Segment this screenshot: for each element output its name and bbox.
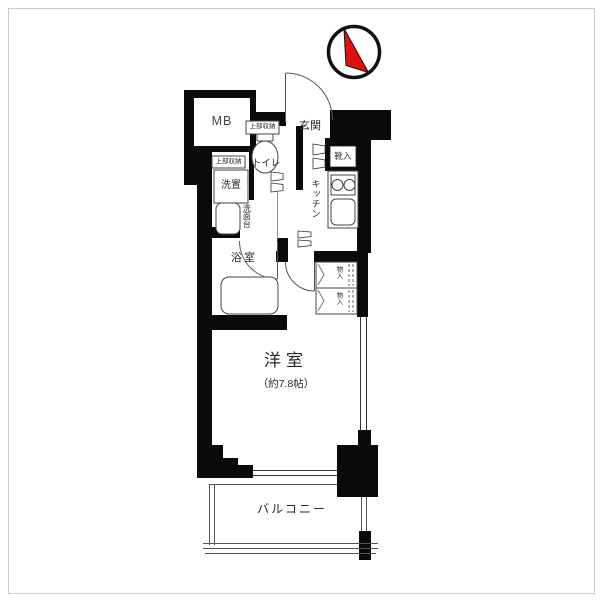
balcony-label: バルコニー xyxy=(242,503,342,516)
closet-lower-label: 物入 xyxy=(334,292,341,312)
main-room-label: 洋室 xyxy=(236,352,336,370)
shoe-cabinet-label: 靴入 xyxy=(330,146,356,167)
room-door-arc xyxy=(286,262,315,291)
bathroom-label: 浴室 xyxy=(221,253,267,265)
genkan-step-marker-top xyxy=(313,144,325,155)
entrance-door-arc xyxy=(286,73,333,120)
wall-bath-bottom xyxy=(197,315,287,330)
room-doorframe-marker-top xyxy=(298,231,311,238)
kitchen-sink xyxy=(331,199,355,225)
washbasin xyxy=(216,203,240,234)
entrance-label: 玄関 xyxy=(288,121,332,133)
main-room-size-label: （約7.8帖） xyxy=(236,379,336,390)
wall-step-3 xyxy=(197,465,253,478)
mb-label: MB xyxy=(194,98,250,146)
upper-storage-toilet-label: 上部収納 xyxy=(246,121,279,134)
floorplan-image: MB 玄関 靴入 キッチン トイレ 上部収納 上部収納 洗置 洗面台 浴室 物入… xyxy=(0,0,603,602)
toilet-doorframe-marker-bottom xyxy=(271,183,283,192)
closet-upper-label: 物入 xyxy=(334,266,341,286)
burner-right-icon xyxy=(344,180,355,191)
wall-pillar-corner xyxy=(337,445,378,497)
wall-balcony-pillar xyxy=(359,531,371,560)
burner-left-icon xyxy=(332,180,343,191)
toilet-label: トイレ xyxy=(250,159,282,169)
wall-pillar-stem xyxy=(358,430,371,447)
toilet-doorframe-marker-top xyxy=(271,172,283,181)
bathtub xyxy=(221,277,278,314)
upper-storage-laundry-label: 上部収納 xyxy=(212,156,245,168)
compass-icon xyxy=(329,27,380,78)
washstand-label: 洗面台 xyxy=(242,204,250,238)
wall-left xyxy=(197,150,212,460)
wall-closet-right xyxy=(357,251,368,317)
wall-top-right-block xyxy=(330,110,391,140)
genkan-step-marker-bottom xyxy=(313,158,325,169)
wall-toilet-right xyxy=(296,126,303,190)
kitchen-label: キッチン xyxy=(310,179,319,223)
laundry-label: 洗置 xyxy=(214,170,248,203)
room-doorframe-marker-bottom xyxy=(298,240,311,247)
